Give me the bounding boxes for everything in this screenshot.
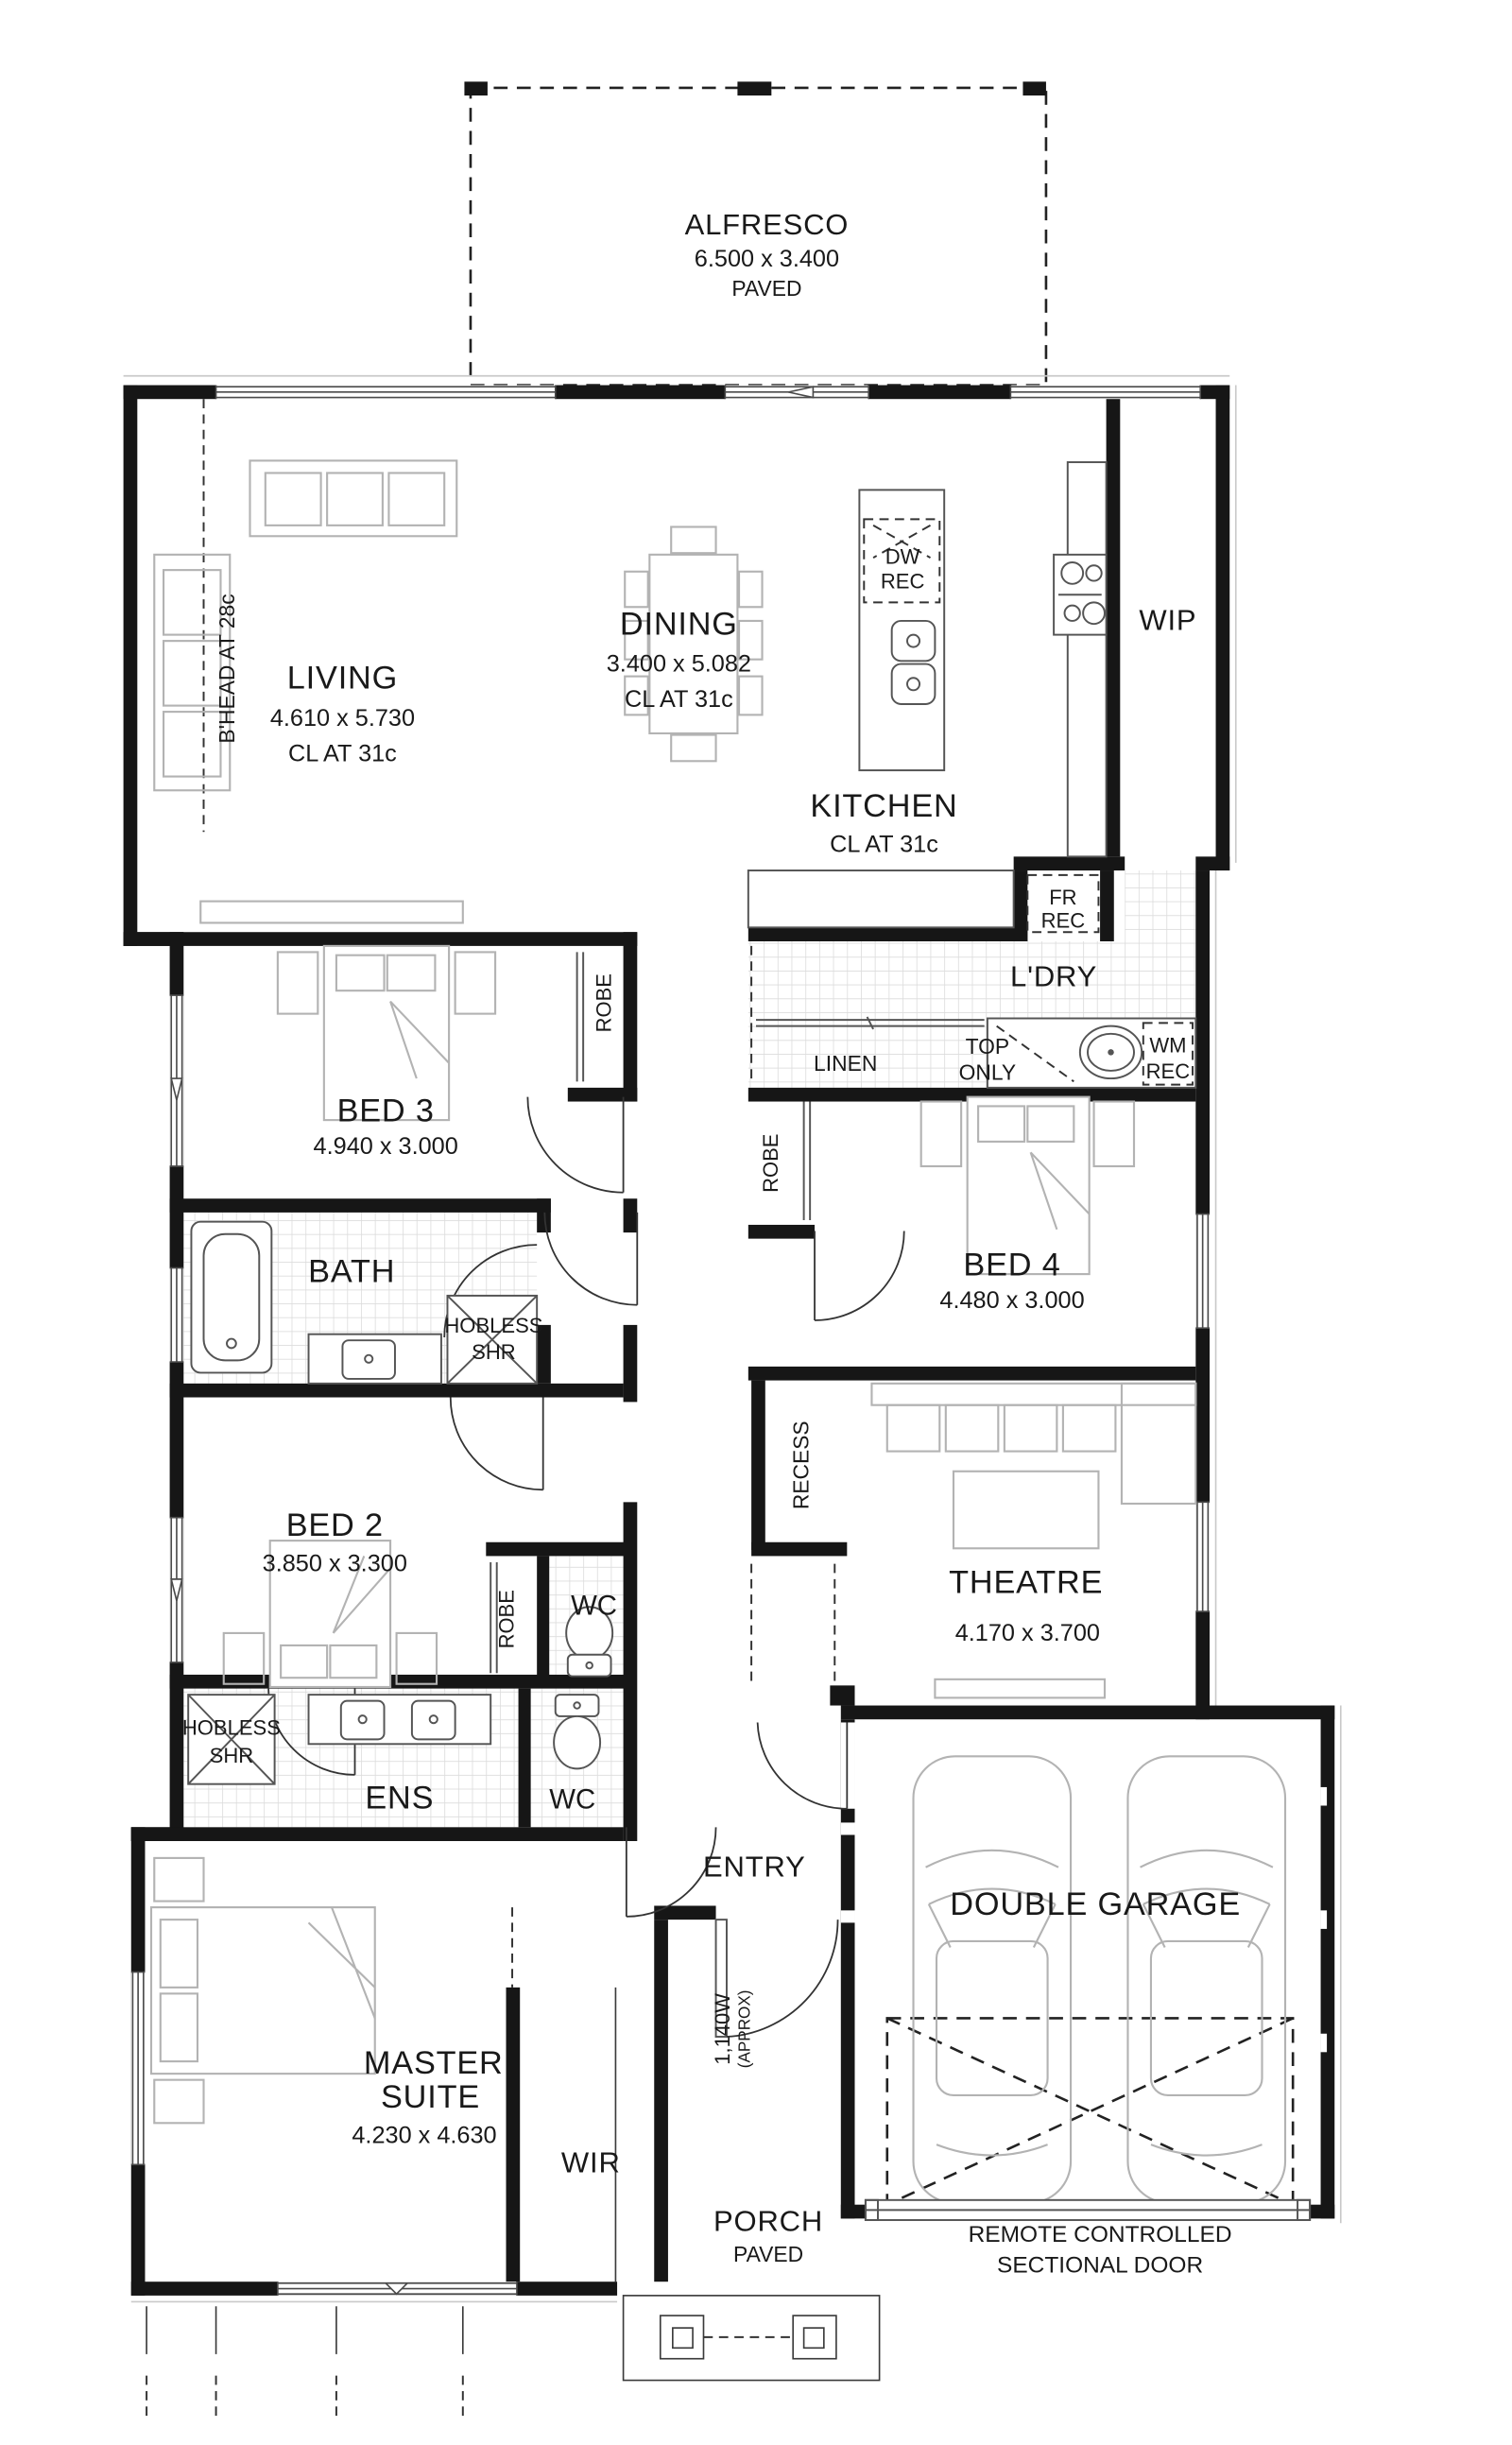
bulkhead-label: B'HEAD AT 28c (215, 594, 239, 743)
window-dining-top (725, 386, 868, 400)
bed2-dims: 3.850 x 3.300 (263, 1551, 407, 1577)
bed2-robe-label: ROBE (495, 1590, 519, 1648)
floor-plan-svg: ALFRESCO 6.500 x 3.400 PAVED LIVING 4.61… (0, 0, 1512, 2445)
site-ticks (146, 2306, 463, 2421)
ens-label: ENS (365, 1781, 434, 1817)
dw-rec-l1: DW (885, 545, 920, 569)
sofa-living (249, 460, 456, 536)
kitchen-island (859, 490, 944, 770)
wir-label: WIR (561, 2145, 621, 2178)
theatre-label: THEATRE (949, 1565, 1103, 1601)
cooktop (1054, 462, 1107, 856)
porch-label: PORCH (713, 2204, 823, 2237)
bed4-robe-label: ROBE (759, 1134, 782, 1193)
window-bed4 (1195, 1214, 1210, 1329)
garage-label: DOUBLE GARAGE (950, 1886, 1241, 1922)
laundry-label: L'DRY (1010, 959, 1097, 992)
bed4-label: BED 4 (963, 1248, 1060, 1283)
porch-surface: PAVED (733, 2242, 803, 2266)
floor-plan-page: ALFRESCO 6.500 x 3.400 PAVED LIVING 4.61… (0, 0, 1512, 2445)
tv-cabinet-living (200, 902, 463, 923)
living-label: LIVING (287, 661, 398, 697)
door-bed3 (527, 1097, 623, 1193)
master-dims: 4.230 x 4.630 (352, 2123, 496, 2149)
bed3-dims: 4.940 x 3.000 (314, 1133, 458, 1160)
dw-rec-l2: REC (881, 570, 925, 594)
kitchen-ceiling: CL AT 31c (830, 831, 938, 857)
living-dims: 4.610 x 5.730 (270, 705, 415, 732)
theatre-furniture (871, 1384, 1195, 1698)
bath-label: BATH (308, 1253, 395, 1289)
alfresco-dims: 6.500 x 3.400 (695, 246, 839, 272)
window-living-top (216, 386, 556, 400)
dining-set (625, 527, 762, 762)
window-bed2 (170, 1518, 184, 1662)
master-label-l2: SUITE (381, 2079, 480, 2115)
kitchen-label: KITCHEN (810, 788, 957, 824)
bath-shower-l2: SHR (472, 1340, 516, 1364)
dining-dims: 3.400 x 5.082 (607, 651, 751, 678)
alfresco-surface: PAVED (731, 276, 801, 301)
front-door-width-l1: 1,140W (711, 1993, 734, 2065)
dining-ceiling: CL AT 31c (625, 686, 733, 713)
window-master-bottom (278, 2281, 517, 2296)
window-bed3 (170, 995, 184, 1166)
toilet-lower (554, 1695, 600, 1768)
wm-rec-l1: WM (1149, 1033, 1186, 1057)
wm-rec-l2: REC (1146, 1059, 1191, 1083)
window-theatre (1195, 1502, 1210, 1611)
wc-lower-label: WC (549, 1784, 595, 1816)
ens-shower-l1: HOBLESS (182, 1716, 281, 1740)
porch-structure (624, 2296, 880, 2381)
door-bed4 (815, 1231, 904, 1320)
door-theatre (758, 1722, 848, 1808)
entry-label: ENTRY (703, 1851, 806, 1884)
car-right (1127, 1756, 1285, 2203)
sectional-door (866, 2200, 1310, 2220)
bed3-label: BED 3 (337, 1093, 435, 1129)
living-ceiling: CL AT 31c (288, 740, 397, 766)
window-kitchen-top (1010, 386, 1200, 400)
ens-shower-l2: SHR (210, 1744, 254, 1767)
car-left (914, 1756, 1072, 2203)
kitchen-bench (748, 870, 1014, 927)
bath-shower-l1: HOBLESS (444, 1314, 542, 1337)
alfresco-label: ALFRESCO (685, 208, 850, 241)
bed3-robe-label: ROBE (593, 973, 616, 1032)
bed4-dims: 4.480 x 3.000 (939, 1287, 1084, 1314)
linen-label: LINEN (814, 1051, 877, 1076)
fr-rec-l1: FR (1049, 886, 1076, 909)
theatre-dims: 4.170 x 3.700 (955, 1620, 1100, 1646)
top-only-l2: ONLY (959, 1060, 1017, 1085)
bed2-label: BED 2 (286, 1507, 384, 1543)
top-only-l1: TOP (966, 1034, 1010, 1059)
master-label-l1: MASTER (364, 2045, 504, 2081)
dining-label: DINING (620, 607, 738, 643)
wip-label: WIP (1139, 604, 1196, 637)
wc-upper-label: WC (571, 1590, 617, 1621)
window-bath (170, 1268, 184, 1362)
garage-door-l1: REMOTE CONTROLLED (969, 2222, 1232, 2247)
garage-door-zone (887, 2018, 1293, 2204)
garage-door-l2: SECTIONAL DOOR (997, 2252, 1203, 2278)
window-master-left (131, 1972, 146, 2165)
recess-label: RECESS (788, 1421, 813, 1509)
door-bed2 (451, 1398, 543, 1490)
fr-rec-l2: REC (1041, 908, 1086, 932)
front-door-width-l2: (APPROX) (735, 1990, 753, 2069)
